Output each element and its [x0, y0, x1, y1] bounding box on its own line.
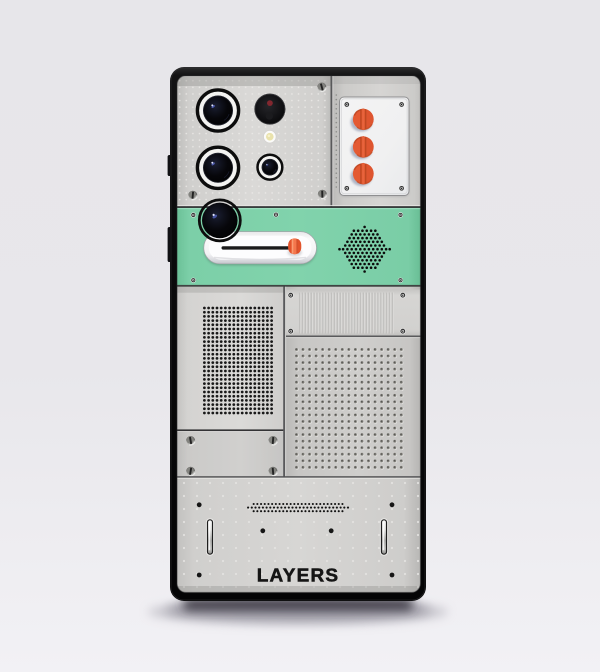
- svg-text:LAYERS: LAYERS: [257, 565, 339, 586]
